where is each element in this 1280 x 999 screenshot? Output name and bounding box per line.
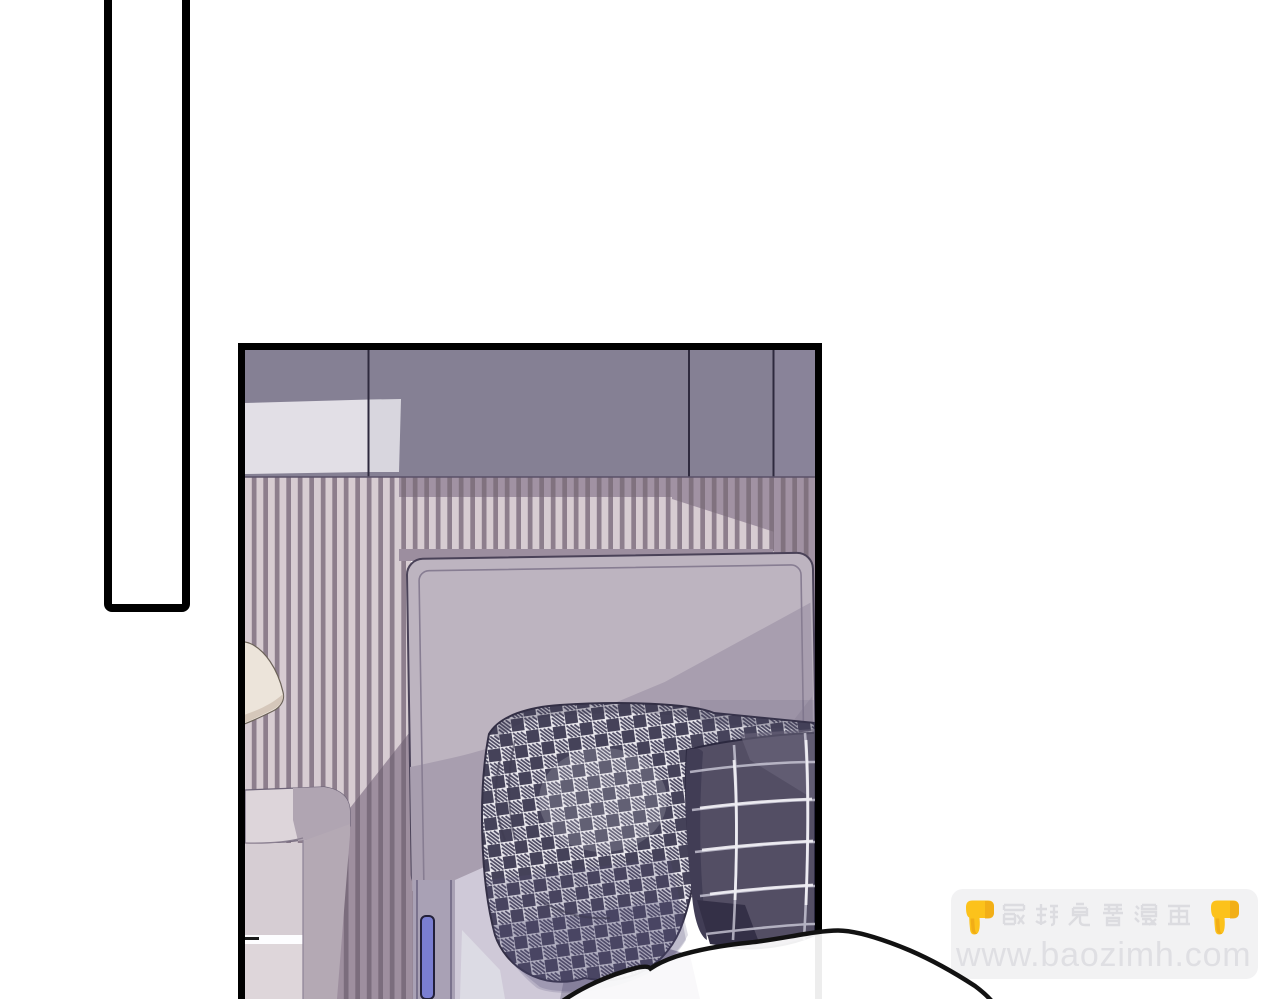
svg-text:www.baozimh.com: www.baozimh.com [955,936,1251,974]
